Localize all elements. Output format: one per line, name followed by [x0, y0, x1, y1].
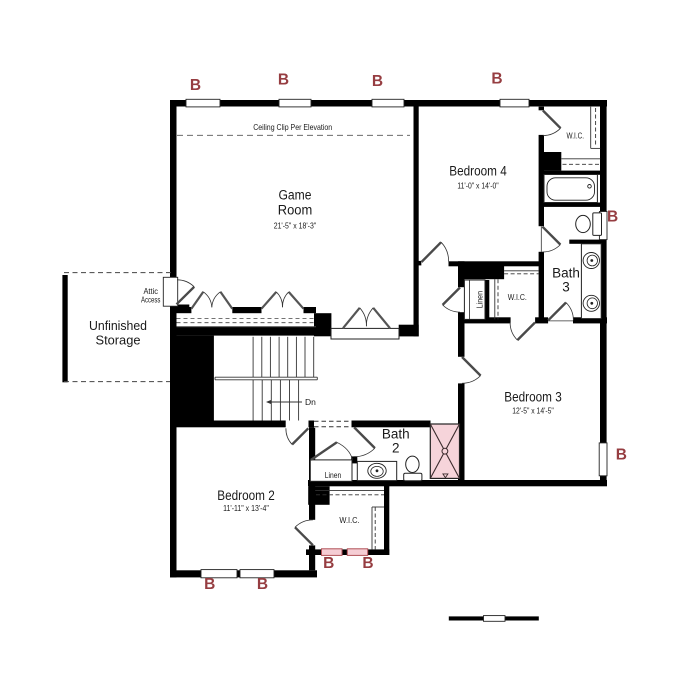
svg-text:B: B [323, 555, 334, 572]
svg-text:B: B [257, 576, 268, 593]
svg-text:Unfinished: Unfinished [89, 318, 147, 333]
svg-text:Bedroom 2: Bedroom 2 [217, 488, 275, 503]
svg-text:W.I.C.: W.I.C. [567, 131, 585, 140]
svg-text:B: B [278, 71, 289, 88]
svg-text:Ceiling Clip Per Elevation: Ceiling Clip Per Elevation [253, 122, 332, 132]
svg-text:11'-11" x 13'-4": 11'-11" x 13'-4" [223, 504, 269, 513]
svg-text:B: B [616, 446, 627, 463]
svg-text:B: B [362, 555, 373, 572]
svg-text:Room: Room [278, 203, 313, 218]
svg-text:Dn: Dn [305, 397, 316, 407]
svg-text:B: B [204, 576, 215, 593]
svg-text:Game: Game [279, 188, 312, 203]
svg-text:Bath: Bath [382, 426, 410, 441]
svg-text:Storage: Storage [96, 333, 141, 348]
svg-text:Bath: Bath [552, 265, 580, 280]
svg-text:W.I.C.: W.I.C. [508, 293, 527, 302]
svg-text:11'-0" x 14'-0": 11'-0" x 14'-0" [457, 182, 498, 191]
svg-text:Access: Access [141, 296, 161, 305]
svg-text:2: 2 [392, 440, 400, 455]
svg-text:3: 3 [562, 279, 570, 294]
svg-text:B: B [372, 73, 383, 90]
svg-text:Linen: Linen [325, 470, 342, 480]
svg-text:Bedroom 4: Bedroom 4 [449, 163, 507, 178]
svg-text:B: B [491, 71, 502, 88]
svg-text:B: B [607, 209, 618, 226]
svg-text:W.I.C.: W.I.C. [339, 516, 359, 525]
svg-text:21'-5" x 18'-3": 21'-5" x 18'-3" [274, 222, 317, 231]
svg-text:Bedroom 3: Bedroom 3 [504, 390, 562, 405]
svg-text:B: B [190, 77, 201, 94]
svg-text:12'-5" x 14'-5": 12'-5" x 14'-5" [512, 407, 554, 416]
svg-text:Linen: Linen [475, 291, 484, 308]
